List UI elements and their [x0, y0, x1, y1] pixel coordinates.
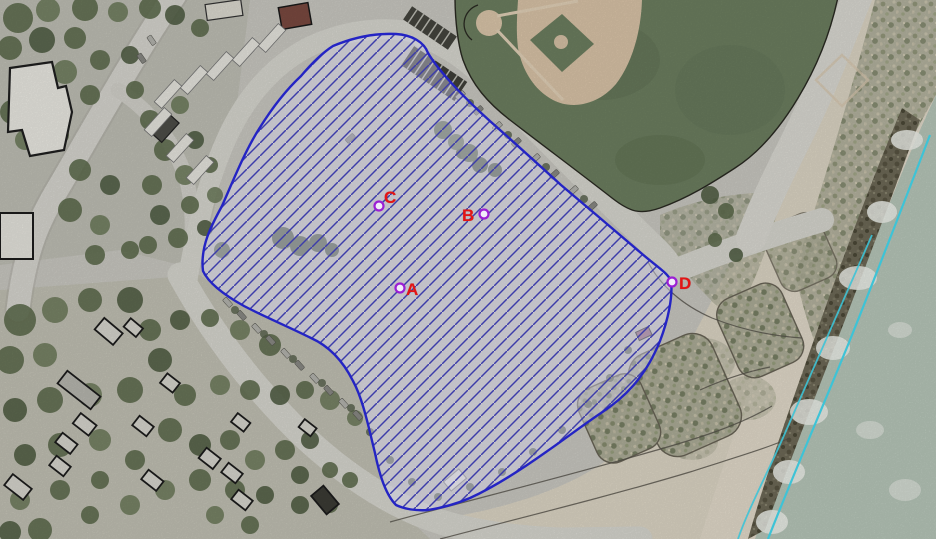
marker-label-B: B: [462, 206, 474, 225]
marker-point-B[interactable]: [480, 210, 489, 219]
marker-label-A: A: [406, 280, 418, 299]
marker-label-C: C: [384, 188, 396, 207]
marker-point-C[interactable]: [375, 202, 384, 211]
marker-point-A[interactable]: [396, 284, 405, 293]
marker-point-D[interactable]: [668, 278, 677, 287]
marker-label-D: D: [679, 274, 691, 293]
aerial-map[interactable]: CBAD: [0, 0, 936, 539]
